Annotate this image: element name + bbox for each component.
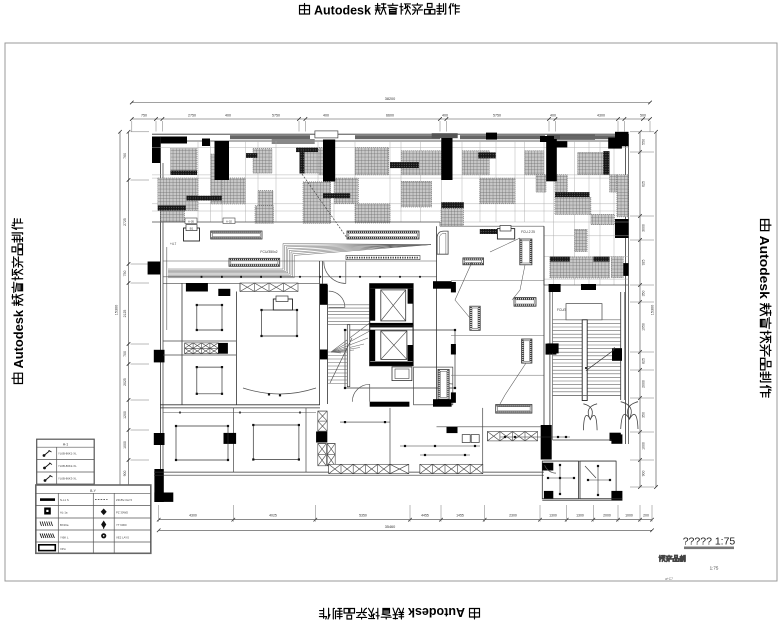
svg-text:2125: 2125 [123,310,127,318]
svg-text:FCU/3: FCU/3 [557,308,566,312]
svg-text:2025: 2025 [123,378,127,386]
svg-text:200: 200 [643,514,649,518]
svg-text:38200: 38200 [385,97,396,101]
svg-text:1000: 1000 [642,442,646,450]
svg-text:750: 750 [141,114,147,118]
svg-text:B-Y: B-Y [90,489,96,493]
svg-text:YT 6060: YT 6060 [116,523,127,527]
svg-text:XPm: XPm [60,547,67,551]
svg-text:400: 400 [225,114,231,118]
svg-text:825: 825 [642,358,646,364]
svg-text:1950: 1950 [642,323,646,331]
svg-text:VE2 LAYS: VE2 LAYS [116,536,129,540]
svg-text:6600: 6600 [386,114,394,118]
svg-text:A-05: A-05 [188,219,194,223]
svg-text:5750: 5750 [493,114,501,118]
svg-text:YL6B-86K2-XL: YL6B-86K2-XL [58,464,77,468]
svg-text:750: 750 [123,271,127,277]
svg-text:A-1: A-1 [63,443,68,447]
svg-text:YL6B-86K1-XL: YL6B-86K1-XL [58,452,77,456]
svg-text:350: 350 [642,412,646,418]
svg-text:+4.7: +4.7 [170,242,177,246]
svg-text:35460: 35460 [385,525,396,529]
svg-text:a+C7: a+C7 [665,577,673,581]
svg-text:ZR-BV-3x2.5: ZR-BV-3x2.5 [116,498,132,502]
svg-text:625: 625 [642,181,646,187]
svg-text:FCU/350x2: FCU/350x2 [260,250,277,254]
svg-text:2000: 2000 [642,380,646,388]
svg-text:700: 700 [123,351,127,357]
svg-text:5350: 5350 [359,514,367,518]
svg-text:1200: 1200 [123,411,127,419]
svg-text:4300: 4300 [189,514,197,518]
svg-text:Y-BK L: Y-BK L [60,536,69,540]
svg-text:1:75: 1:75 [710,566,719,571]
svg-text:3000: 3000 [642,224,646,232]
svg-text:2725: 2725 [123,218,127,226]
svg-text:1300: 1300 [549,514,557,518]
svg-text:400: 400 [323,114,329,118]
svg-text:A-02: A-02 [226,219,232,223]
svg-text:350: 350 [642,291,646,297]
svg-text:900: 900 [123,471,127,477]
svg-text:4025: 4025 [269,514,277,518]
svg-text:2750: 2750 [188,114,196,118]
svg-text:1300: 1300 [576,514,584,518]
svg-text:YL6B-86K3-XL: YL6B-86K3-XL [58,477,77,481]
svg-text:2000: 2000 [603,514,611,518]
svg-text:760: 760 [123,153,127,159]
svg-text:4455: 4455 [421,514,429,518]
svg-text:FCU-2 25: FCU-2 25 [521,230,535,234]
svg-text:925: 925 [642,260,646,266]
svg-text:1000: 1000 [123,441,127,449]
svg-text:15300: 15300 [651,305,655,316]
svg-text:Autodesk: Autodesk [408,605,465,619]
svg-text:1000: 1000 [625,514,633,518]
svg-text:Autodesk: Autodesk [12,309,26,369]
svg-text:400: 400 [442,114,448,118]
svg-text:Autodesk: Autodesk [757,236,771,300]
svg-text:AL-1a: AL-1a [60,511,68,515]
svg-text:5750: 5750 [272,114,280,118]
svg-text:PZ 30WD: PZ 30WD [116,511,128,515]
svg-text:400: 400 [550,114,556,118]
svg-text:1455: 1455 [456,514,464,518]
svg-text:N-L1 S: N-L1 S [60,498,69,502]
svg-text:Autodesk: Autodesk [314,4,371,18]
svg-text:900: 900 [642,471,646,477]
svg-text:500: 500 [640,114,646,118]
svg-text:????? 1:75: ????? 1:75 [683,536,736,548]
svg-text:4300: 4300 [597,114,605,118]
svg-text:BX16a: BX16a [60,523,69,527]
svg-text:2300: 2300 [509,514,517,518]
svg-text:550: 550 [642,139,646,145]
svg-text:B1: B1 [190,226,194,230]
svg-text:15300: 15300 [115,305,119,316]
